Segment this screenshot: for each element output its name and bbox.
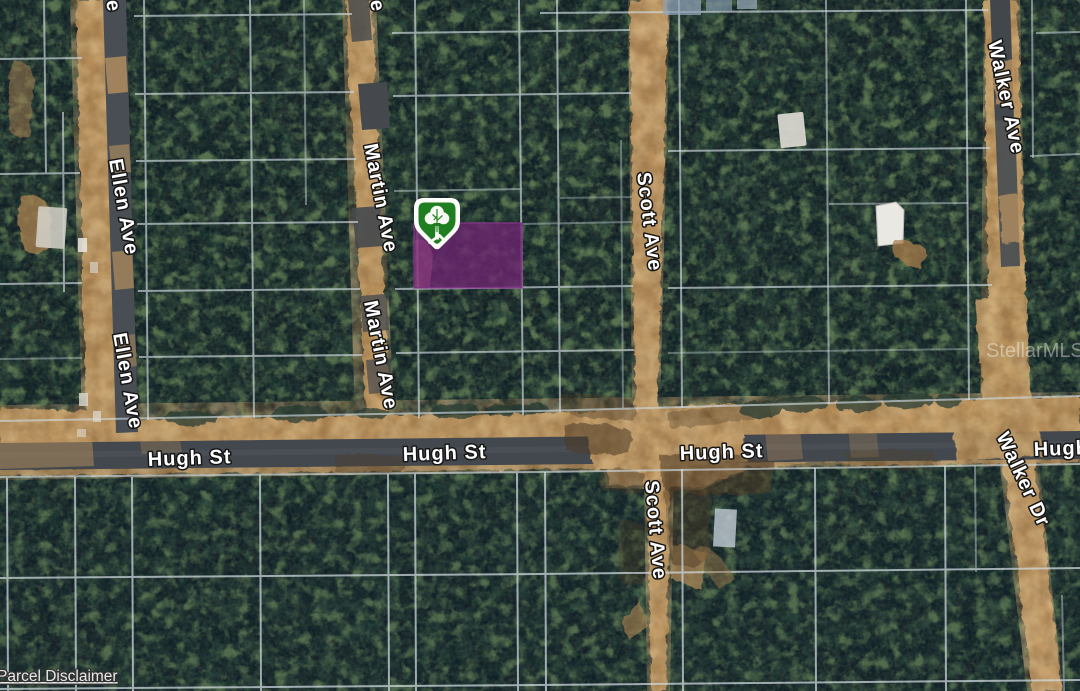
- svg-text:Parcel Disclaimer: Parcel Disclaimer: [0, 668, 118, 685]
- svg-text:Hugh St: Hugh St: [147, 446, 231, 471]
- svg-text:Hugh St: Hugh St: [679, 440, 763, 465]
- svg-text:StellarMLS: StellarMLS: [986, 340, 1080, 362]
- svg-text:Hugh S: Hugh S: [1033, 436, 1080, 461]
- svg-text:Hugh St: Hugh St: [402, 441, 486, 466]
